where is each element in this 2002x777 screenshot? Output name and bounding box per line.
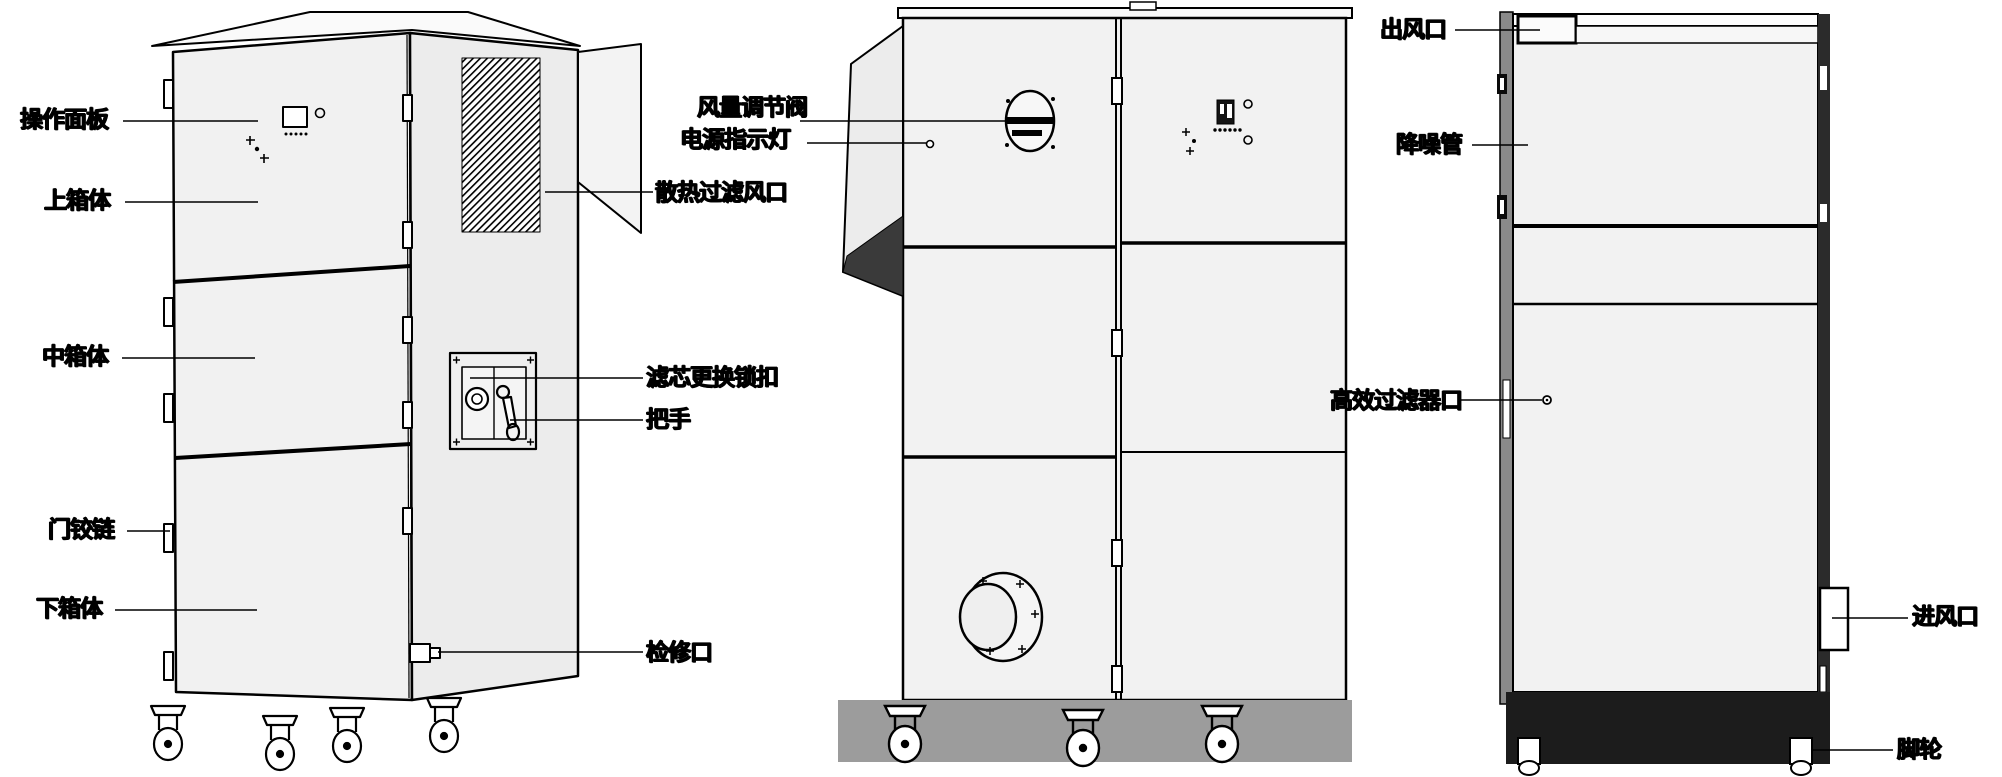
machine-view-front bbox=[838, 2, 1352, 766]
top-band-2 bbox=[1576, 26, 1818, 43]
machine-line-drawing bbox=[0, 0, 2002, 777]
air-volume-damper bbox=[1005, 91, 1055, 151]
air-inlet-box bbox=[1820, 588, 1848, 650]
label-operation-panel: 操作面板 bbox=[20, 106, 108, 134]
machine-view-front-left bbox=[151, 12, 641, 770]
label-air-outlet: 出风口 bbox=[1380, 16, 1446, 44]
filter-lock-box bbox=[450, 353, 536, 449]
front-face bbox=[173, 33, 412, 700]
lifting-lug bbox=[1130, 2, 1156, 10]
noise-duct-strip bbox=[1500, 12, 1513, 704]
base-shadow bbox=[1506, 692, 1830, 764]
label-casters: 脚轮 bbox=[1897, 736, 1941, 764]
inlet-duct-arm bbox=[578, 44, 641, 233]
cooling-grille bbox=[462, 58, 540, 232]
label-air-volume-valve: 风量调节阀 bbox=[697, 94, 807, 122]
label-service-port: 检修口 bbox=[646, 639, 712, 667]
label-air-inlet: 进风口 bbox=[1912, 603, 1978, 631]
lock-cylinder bbox=[466, 388, 488, 410]
label-power-indicator: 电源指示灯 bbox=[680, 126, 790, 154]
machine-view-side bbox=[1497, 12, 1848, 775]
label-cooling-filter-vent: 散热过滤风口 bbox=[655, 179, 787, 207]
door-hinges-left bbox=[164, 80, 173, 680]
label-door-hinge: 门铰链 bbox=[48, 516, 114, 544]
casters-view1 bbox=[151, 698, 461, 770]
top-lid-strip bbox=[898, 8, 1352, 18]
label-lower-cabinet: 下箱体 bbox=[36, 595, 102, 623]
diagram-canvas: 操作面板 上箱体 中箱体 门铰链 下箱体 风量调节阀 电源指示灯 散热过滤风口 … bbox=[0, 0, 2002, 777]
power-indicator-lamp bbox=[927, 141, 934, 148]
label-noise-reduction-duct: 降噪管 bbox=[1396, 131, 1462, 159]
label-middle-cabinet: 中箱体 bbox=[42, 343, 108, 371]
label-filter-change-lock: 滤芯更换锁扣 bbox=[646, 364, 778, 392]
label-upper-cabinet: 上箱体 bbox=[44, 187, 110, 215]
label-handle: 把手 bbox=[646, 406, 690, 434]
label-hepa-filter-port: 高效过滤器口 bbox=[1330, 387, 1462, 415]
side-body bbox=[1513, 14, 1818, 692]
